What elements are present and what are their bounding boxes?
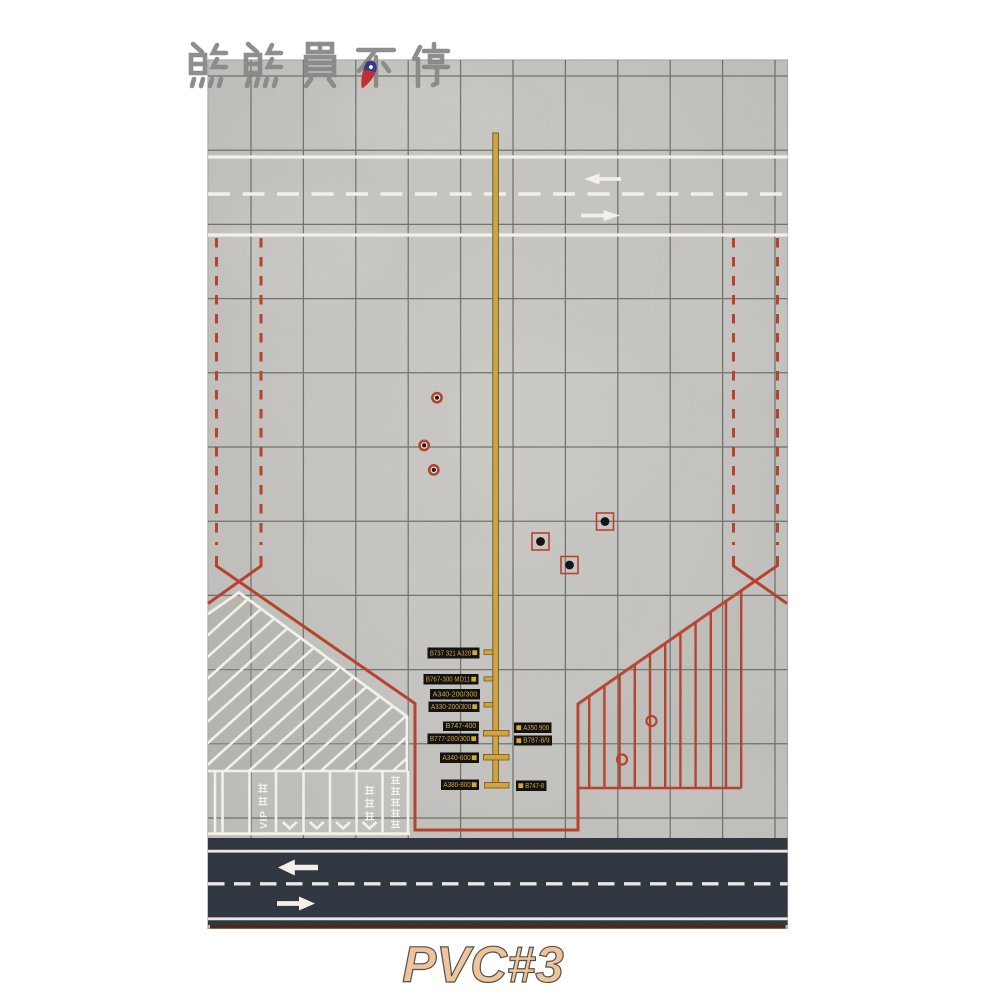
svg-text:B747-400: B747-400 xyxy=(446,721,477,730)
svg-text:B737 321 A320: B737 321 A320 xyxy=(430,649,471,658)
svg-text:A350 900: A350 900 xyxy=(523,723,549,732)
svg-text:A330-200/300: A330-200/300 xyxy=(431,702,471,711)
svg-text:B767-300 MD11: B767-300 MD11 xyxy=(426,675,470,684)
svg-text:B787-8/9: B787-8/9 xyxy=(523,736,549,745)
svg-text:B747-8: B747-8 xyxy=(525,781,544,790)
svg-text:PVC#3: PVC#3 xyxy=(402,936,564,993)
svg-text:A340-600: A340-600 xyxy=(442,753,470,762)
svg-text:A380-800: A380-800 xyxy=(443,780,470,789)
svg-text:VIP: VIP xyxy=(258,811,270,829)
svg-text:B777-200/300: B777-200/300 xyxy=(430,734,470,743)
svg-text:A340-200/300: A340-200/300 xyxy=(433,690,478,699)
